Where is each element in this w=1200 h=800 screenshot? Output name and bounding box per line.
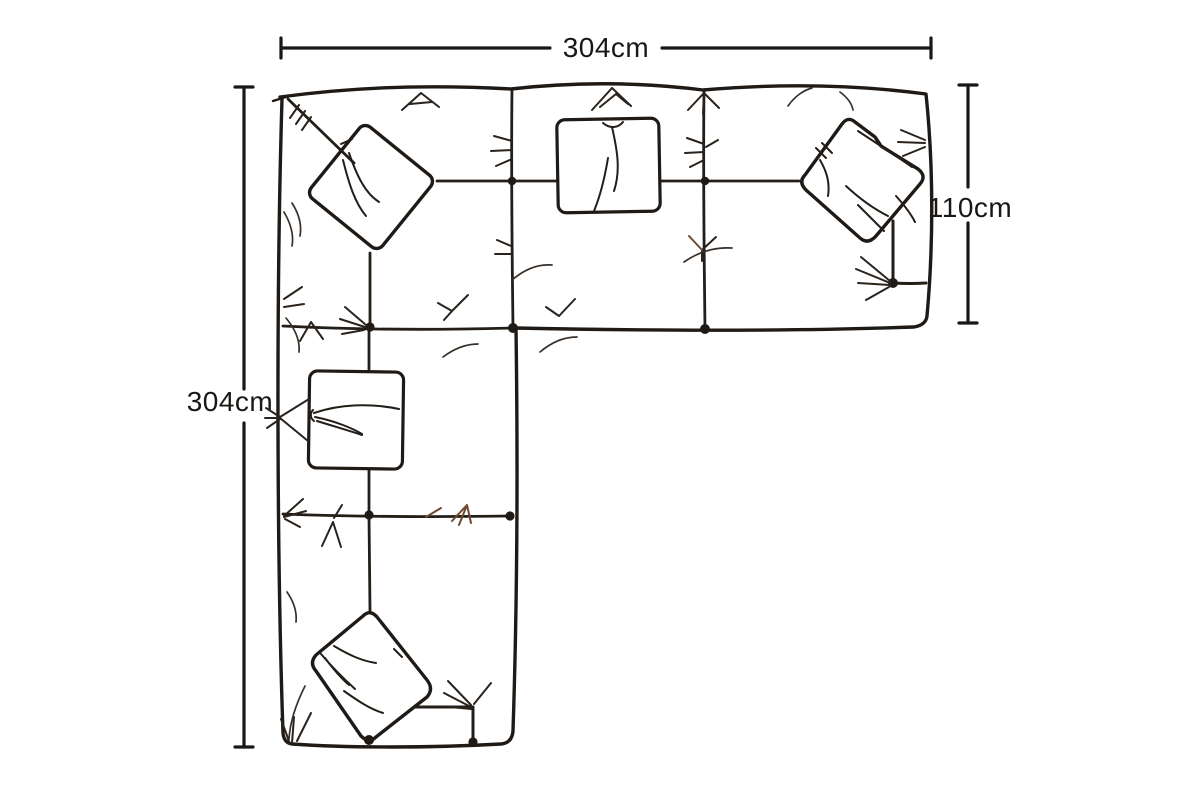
corner-cushion-shape: [306, 122, 435, 251]
seam-button: [505, 511, 514, 520]
seam-button: [468, 737, 477, 746]
seam-button: [508, 323, 518, 333]
midback-cushion-shape: [557, 118, 661, 213]
seam-button: [365, 322, 374, 331]
seam-front-left-wing: [283, 326, 515, 329]
tuft-strokes-brown: [426, 236, 702, 525]
seam-button: [508, 177, 516, 185]
seam-vertical-1: [512, 90, 513, 328]
front-cushion-shape: [313, 613, 431, 741]
front-scatter-cushion: [313, 613, 431, 741]
right-scatter-cushion: [802, 119, 923, 241]
corner-scatter-cushion: [306, 122, 435, 251]
dim-right-label: 110cm: [928, 192, 1012, 223]
seam-button: [700, 324, 710, 334]
diagram-canvas: 304cm 304cm 110cm: [0, 0, 1200, 800]
seam-corner-diagonal: [288, 99, 354, 163]
seam-vertical-2: [704, 91, 705, 329]
seam-buttons: [364, 177, 898, 747]
armrest-lines: [414, 221, 926, 743]
midback-scatter-cushion: [557, 118, 661, 213]
seam-mid-left-wing: [283, 514, 511, 517]
seam-button: [701, 177, 709, 185]
seam-button: [364, 510, 373, 519]
dimension-right-depth: 110cm: [928, 85, 1012, 323]
tuft-marks-brown: [426, 236, 702, 525]
dimension-left-length: 304cm: [187, 87, 274, 747]
left-scatter-cushion: [308, 371, 403, 469]
seam-column-vertical-b: [369, 516, 370, 611]
seam-button: [364, 735, 374, 745]
left-cushion-shape: [308, 371, 403, 469]
sofa-drawing: [265, 84, 932, 747]
sofa-dimensions-diagram: 304cm 304cm 110cm: [0, 0, 1200, 800]
dim-top-label: 304cm: [563, 32, 650, 63]
dim-left-label: 304cm: [187, 386, 274, 417]
right-cushion-shape: [802, 119, 923, 241]
dimension-top-width: 304cm: [281, 32, 931, 63]
